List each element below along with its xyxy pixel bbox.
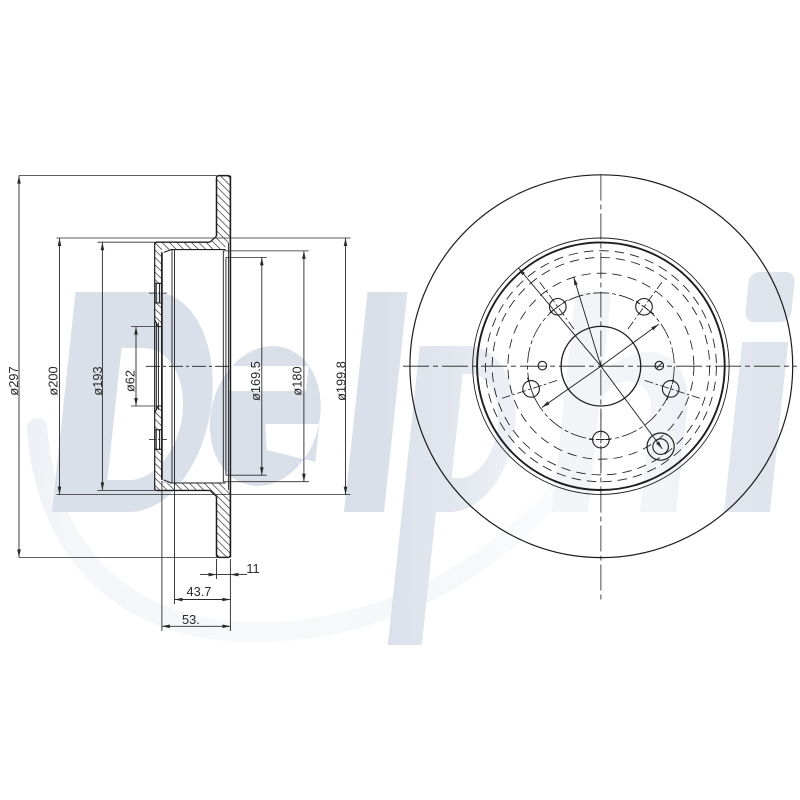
svg-text:ø200: ø200 [46, 366, 61, 395]
svg-text:11: 11 [246, 561, 259, 576]
svg-text:ø199.8: ø199.8 [334, 361, 349, 401]
svg-text:ø193: ø193 [90, 366, 105, 395]
svg-text:53.: 53. [182, 612, 200, 627]
svg-text:ø62: ø62 [123, 370, 138, 392]
svg-text:ø180: ø180 [290, 366, 305, 395]
svg-text:ø297: ø297 [6, 366, 21, 395]
svg-text:43.7: 43.7 [187, 584, 212, 599]
svg-text:ø169.5: ø169.5 [248, 361, 263, 401]
